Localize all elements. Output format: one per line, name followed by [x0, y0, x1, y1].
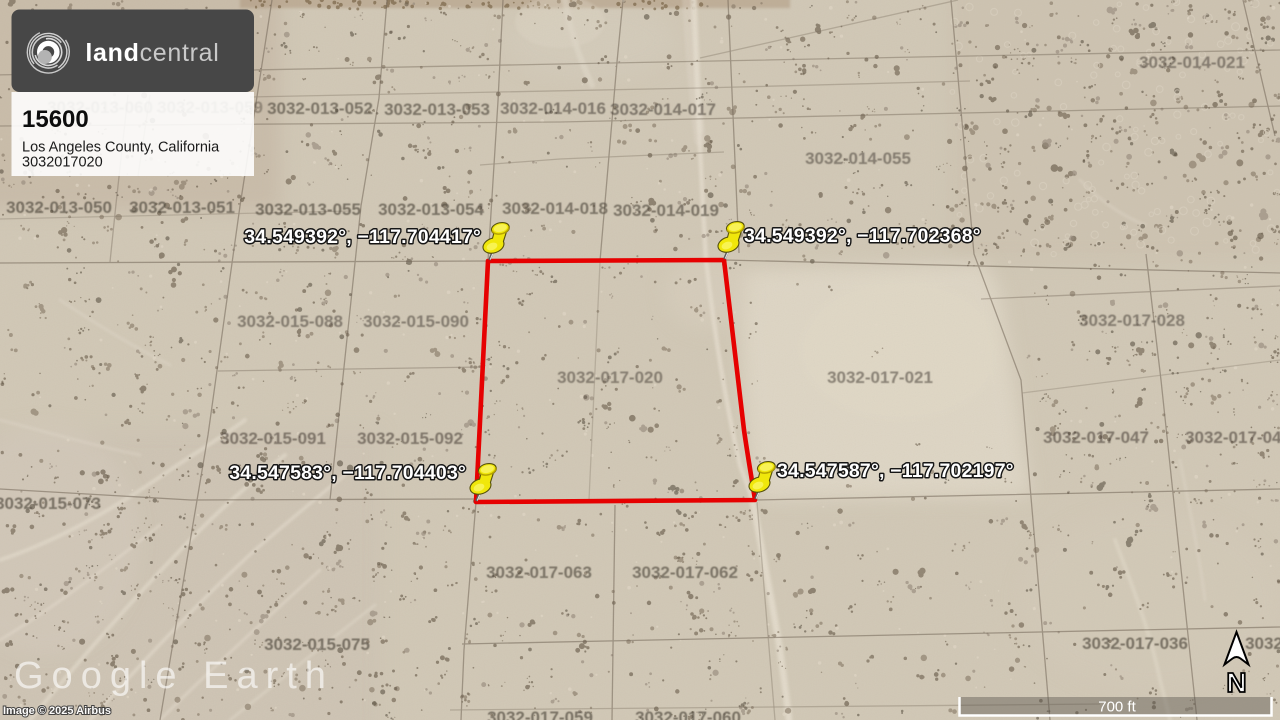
svg-text:3032-013-050: 3032-013-050: [6, 198, 112, 217]
svg-text:3032-014-055: 3032-014-055: [805, 149, 911, 168]
svg-text:3032-015-073: 3032-015-073: [0, 494, 101, 513]
svg-text:Google Earth: Google Earth: [14, 655, 334, 697]
svg-text:3032-015-092: 3032-015-092: [357, 429, 463, 448]
svg-text:34.547587°, −117.702197°: 34.547587°, −117.702197°: [777, 460, 1014, 482]
svg-text:3032-014-016: 3032-014-016: [500, 99, 606, 118]
svg-text:3032-015-091: 3032-015-091: [220, 429, 326, 448]
svg-text:34.549392°, −117.704417°: 34.549392°, −117.704417°: [244, 226, 481, 248]
svg-text:Image © 2025 Airbus: Image © 2025 Airbus: [3, 705, 111, 717]
svg-text:3032-017-020: 3032-017-020: [557, 368, 663, 387]
svg-text:3032-017-046: 3032-017-046: [1185, 428, 1280, 447]
svg-text:700 ft: 700 ft: [1098, 699, 1136, 716]
svg-text:3032-017-059: 3032-017-059: [487, 708, 593, 720]
svg-text:3032-017-035: 3032-017-035: [1245, 634, 1280, 653]
svg-text:3032-013-051: 3032-013-051: [129, 198, 235, 217]
svg-text:3032-015-088: 3032-015-088: [237, 312, 343, 331]
svg-text:34.549392°, −117.702368°: 34.549392°, −117.702368°: [744, 225, 981, 247]
svg-text:3032-014-019: 3032-014-019: [613, 201, 719, 220]
svg-text:3032-017-028: 3032-017-028: [1079, 311, 1185, 330]
svg-text:3032-013-052: 3032-013-052: [267, 99, 373, 118]
svg-text:3032-017-036: 3032-017-036: [1082, 634, 1188, 653]
svg-text:Los Angeles County, California: Los Angeles County, California: [22, 140, 220, 156]
svg-text:3032-013-054: 3032-013-054: [378, 200, 484, 219]
svg-text:3032-015-090: 3032-015-090: [363, 312, 469, 331]
svg-text:3032-017-021: 3032-017-021: [827, 368, 933, 387]
svg-text:landcentral: landcentral: [85, 39, 219, 67]
svg-text:15600: 15600: [22, 106, 89, 133]
svg-text:3032-017-062: 3032-017-062: [632, 563, 738, 582]
svg-text:3032-014-018: 3032-014-018: [502, 199, 608, 218]
svg-text:3032-017-047: 3032-017-047: [1043, 428, 1149, 447]
svg-text:3032-017-063: 3032-017-063: [486, 563, 592, 582]
svg-text:3032-015-075: 3032-015-075: [264, 635, 370, 654]
svg-text:N: N: [1226, 667, 1246, 698]
svg-text:3032-014-017: 3032-014-017: [610, 100, 716, 119]
svg-text:3032-014-021: 3032-014-021: [1139, 53, 1245, 72]
svg-text:3032017020: 3032017020: [22, 155, 103, 171]
svg-text:3032-013-055: 3032-013-055: [255, 200, 361, 219]
svg-text:3032-013-053: 3032-013-053: [384, 100, 490, 119]
svg-text:34.547583°, −117.704403°: 34.547583°, −117.704403°: [229, 462, 466, 484]
svg-text:3032-017-060: 3032-017-060: [635, 708, 741, 720]
